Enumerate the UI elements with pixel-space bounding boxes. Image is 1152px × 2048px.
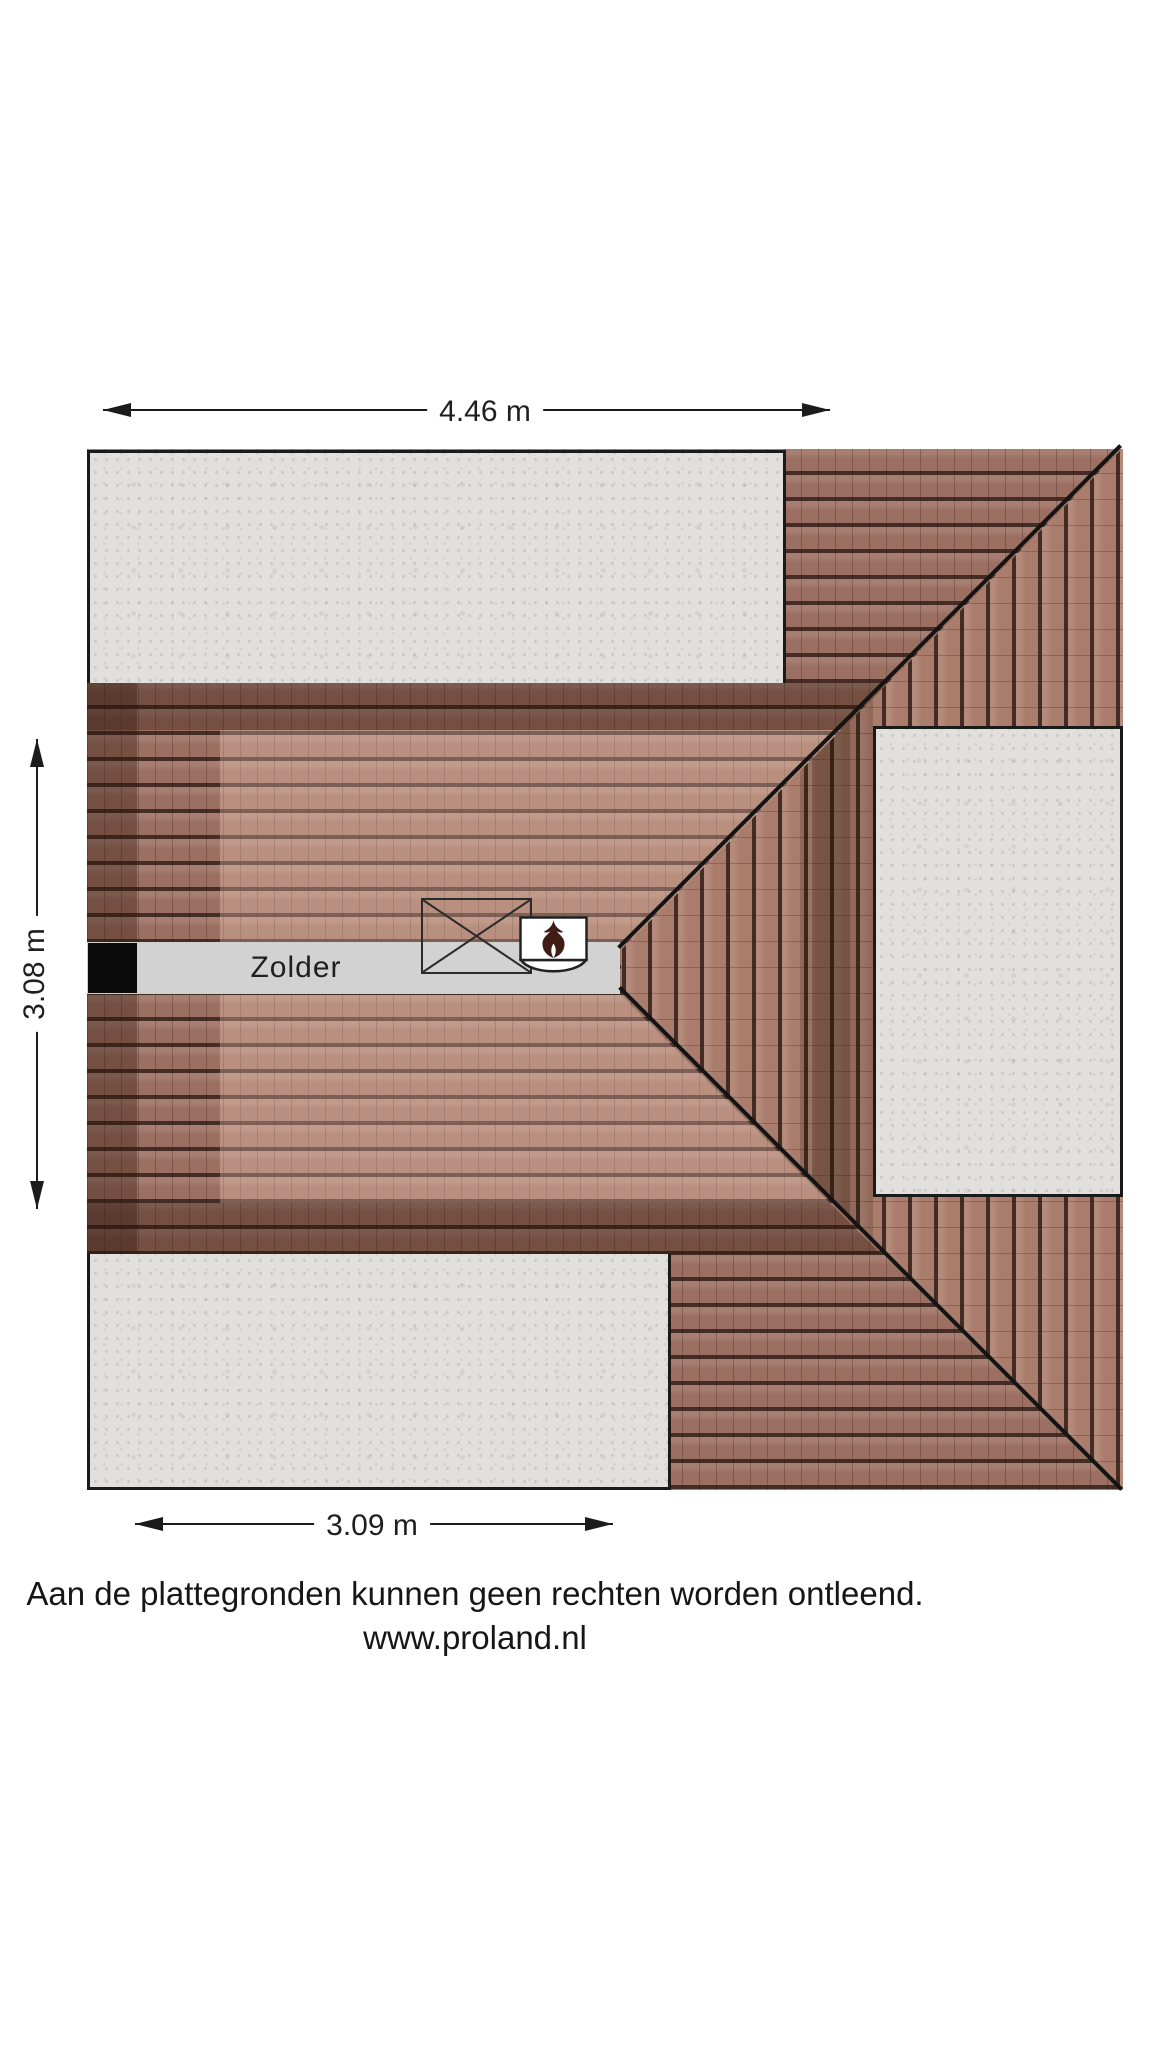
footer: Aan de plattegronden kunnen geen rechten… [26, 1572, 923, 1660]
flat-roof-right [873, 726, 1123, 1197]
dimension-label-bottom: 3.09 m [314, 1509, 430, 1543]
flame-icon [519, 916, 588, 978]
cross-icon [423, 900, 530, 972]
arrowhead-right-icon [585, 1517, 613, 1531]
flat-roof-top [87, 450, 786, 683]
arrowhead-up-icon [30, 739, 44, 767]
disclaimer-text: Aan de plattegronden kunnen geen rechten… [26, 1572, 923, 1616]
chimney-block [88, 943, 137, 993]
boiler-unit [519, 916, 588, 978]
arrowhead-down-icon [30, 1181, 44, 1209]
room-label: Zolder [250, 951, 341, 985]
dimension-label-top: 4.46 m [427, 395, 543, 429]
flat-roof-bottom [87, 1254, 671, 1490]
arrowhead-left-icon [135, 1517, 163, 1531]
floorplan-canvas: Zolder 4.46 m 3.08 m 3.09 m Aan de platt… [0, 0, 1152, 2048]
roof-east-edge-band-core [812, 683, 850, 1254]
website-text: www.proland.nl [26, 1616, 923, 1660]
arrowhead-left-icon [103, 403, 131, 417]
stair-opening [421, 898, 532, 974]
arrowhead-right-icon [802, 403, 830, 417]
dimension-label-left: 3.08 m [18, 916, 52, 1032]
